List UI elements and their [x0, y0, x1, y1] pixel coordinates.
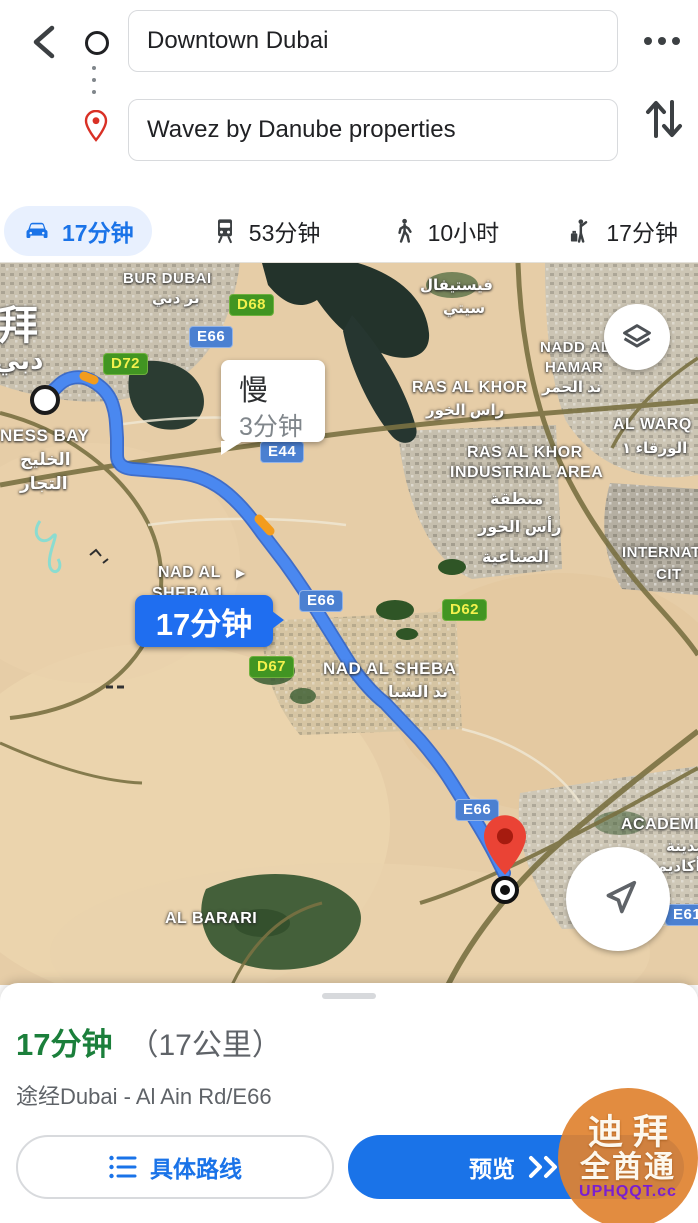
- navigation-arrow-icon: [595, 876, 641, 922]
- map-label-rak-industrial-1: RAS AL KHOR: [467, 444, 583, 462]
- map-label-academic-ar1: مدينة: [666, 837, 698, 855]
- destination-marker-pin: [484, 815, 526, 875]
- origin-marker: [30, 385, 60, 415]
- preview-label: 预览: [469, 1150, 515, 1184]
- dot: [658, 37, 666, 45]
- map-label-academic: ACADEMI: [621, 816, 698, 834]
- directions-screen: Downtown Dubai Wavez by Danube propertie…: [0, 0, 698, 1223]
- map-label-ras-al-khor: RAS AL KHOR: [412, 379, 528, 397]
- steps-list-icon: [108, 1154, 138, 1180]
- ride-hail-icon: [568, 217, 596, 245]
- map-layers-button[interactable]: [604, 304, 670, 370]
- map-label-business-bay-ar2: التجار: [20, 474, 68, 494]
- map-label-international-2: CIT: [656, 566, 682, 583]
- destination-input-value: Wavez by Danube properties: [147, 116, 456, 144]
- map-label-ras-al-khor-ar: راس الخور: [426, 401, 504, 419]
- dot: [672, 37, 680, 45]
- destination-input[interactable]: Wavez by Danube properties: [128, 99, 618, 161]
- traffic-callout-time: 3分钟: [239, 407, 325, 443]
- map-label-al-warqa: AL WARQ: [613, 416, 692, 434]
- route-shield-d68: D68: [229, 294, 274, 316]
- travel-mode-tabs: 17分钟 53分钟 10小时: [0, 200, 698, 263]
- map-label-dubai-ar: دبي: [0, 345, 43, 376]
- map-label-rak-industrial-2: INDUSTRIAL AREA: [450, 464, 603, 482]
- map-label-nadd-al-hamar-2: HAMAR: [545, 359, 603, 376]
- map-label-al-warqa-ar: الورقاء ١: [622, 439, 687, 457]
- dot: [644, 37, 652, 45]
- layers-icon: [620, 320, 654, 354]
- car-icon: [22, 216, 52, 246]
- route-shield-e44: E44: [260, 441, 304, 463]
- map-label-nad-al-sheba-ar: ند الشبا: [388, 682, 448, 702]
- connector-dot: [92, 66, 96, 70]
- watermark-line2: 全酋通: [580, 1152, 676, 1184]
- map-label-festival-ar1: فيستيفال: [420, 276, 493, 294]
- map-label-business-bay-ar1: الخليج: [20, 450, 71, 470]
- traffic-callout-title: 慢: [239, 367, 325, 409]
- map-label-nad-al-sheba1-arrow: ▶: [236, 566, 246, 580]
- route-duration: 17分钟: [16, 1019, 112, 1064]
- map-label-business-bay: NESS BAY: [0, 426, 89, 446]
- directions-header: Downtown Dubai Wavez by Danube propertie…: [0, 0, 698, 200]
- route-shield-e66-mid: E66: [299, 590, 343, 612]
- back-button[interactable]: [24, 20, 64, 64]
- destination-point-marker: [491, 876, 519, 904]
- tab-walk[interactable]: 10小时: [380, 206, 510, 256]
- route-shield-d67: D67: [249, 656, 294, 678]
- step-details-button[interactable]: 具体路线: [16, 1135, 334, 1199]
- map-label-rak-industrial-ar1: منطقة: [490, 489, 543, 509]
- route-shield-e66-top: E66: [189, 326, 233, 348]
- route-duration-label: 17分钟: [156, 599, 252, 644]
- route-shield-d62: D62: [442, 599, 487, 621]
- map-label-bur-dubai-ar: بر دبي: [152, 289, 200, 307]
- route-shield-e611: E611: [665, 904, 698, 926]
- tab-walk-label: 10小时: [428, 214, 500, 248]
- map-label-rak-industrial-ar3: الصناعية: [482, 547, 549, 567]
- step-details-label: 具体路线: [150, 1150, 242, 1184]
- tab-drive[interactable]: 17分钟: [4, 206, 152, 256]
- destination-pin-icon: [84, 110, 108, 142]
- map-label-nadd-al-hamar-1: NADD AL: [540, 339, 610, 356]
- tab-transit[interactable]: 53分钟: [201, 206, 331, 256]
- site-watermark: 迪拜 全酋通 UPHQQT.cc: [558, 1088, 698, 1223]
- route-duration-tail: [272, 611, 284, 629]
- origin-input[interactable]: Downtown Dubai: [128, 10, 618, 72]
- origin-input-value: Downtown Dubai: [147, 27, 328, 55]
- route-distance: （17公里）: [128, 1020, 281, 1064]
- connector-dot: [92, 78, 96, 82]
- map-label-festival-ar2: سيتي: [443, 299, 485, 317]
- map-canvas[interactable]: BUR DUBAI بر دبي 拜 دبي NESS BAY الخليج ا…: [0, 263, 698, 985]
- route-shield-d72: D72: [103, 353, 148, 375]
- route-summary: 17分钟 （17公里）: [16, 1019, 282, 1064]
- tab-ride-label: 17分钟: [606, 214, 678, 248]
- sheet-drag-handle[interactable]: [322, 993, 376, 999]
- tab-ride[interactable]: 17分钟: [558, 206, 688, 256]
- walk-icon: [390, 217, 418, 245]
- map-label-bur-dubai: BUR DUBAI: [123, 270, 212, 287]
- map-label-rak-industrial-ar2: رأس الخور: [478, 517, 561, 537]
- tab-transit-label: 53分钟: [249, 214, 321, 248]
- map-label-nad-al-sheba: NAD AL SHEBA: [323, 659, 457, 679]
- route-via: 途经Dubai - Al Ain Rd/E66: [16, 1079, 272, 1111]
- origin-dot-icon: [85, 31, 109, 55]
- train-icon: [211, 217, 239, 245]
- map-label-international-1: INTERNAT: [622, 544, 698, 561]
- traffic-callout: 慢 3分钟: [221, 360, 325, 442]
- connector-dot: [92, 90, 96, 94]
- map-label-nadd-al-hamar-ar: ند الحمر: [542, 378, 601, 396]
- tab-drive-label: 17分钟: [62, 214, 134, 248]
- watermark-line1: 迪拜: [578, 1115, 678, 1152]
- map-label-al-barari: AL BARARI: [165, 910, 257, 928]
- route-duration-callout[interactable]: 17分钟: [135, 595, 273, 647]
- more-options-button[interactable]: [638, 26, 686, 56]
- recenter-navigation-button[interactable]: [566, 847, 670, 951]
- map-label-dubai-zh: 拜: [0, 293, 38, 351]
- watermark-line3: UPHQQT.cc: [579, 1184, 677, 1201]
- swap-origin-destination-button[interactable]: [642, 94, 686, 144]
- map-label-nad-al-sheba1-l1: NAD AL: [158, 564, 221, 582]
